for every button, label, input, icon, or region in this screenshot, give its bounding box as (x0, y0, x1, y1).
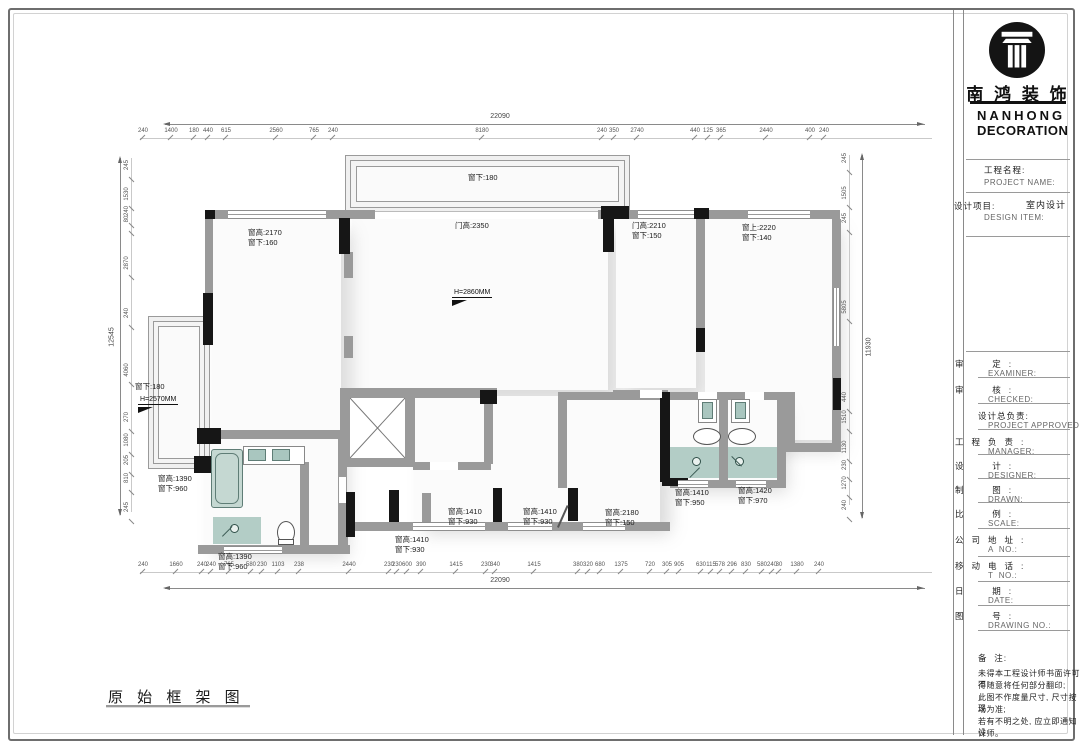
dim-value: 720 (645, 562, 655, 568)
plan-label: 窗高:1410 窗下:950 (675, 488, 709, 508)
dim-value: 240 (124, 308, 130, 318)
dim-value: 1505 (842, 186, 848, 199)
tb-row-rule (978, 528, 1070, 529)
dim-value: 270 (124, 412, 130, 422)
dim-value: 1270 (842, 476, 848, 489)
tb-row-rule (978, 454, 1070, 455)
dim-value: 2440 (342, 562, 355, 568)
dim-value: 245 (124, 160, 130, 170)
tb-row-rule (978, 605, 1070, 606)
dim-value: 400 (805, 128, 815, 134)
dim-value: 830 (741, 562, 751, 568)
height-marker: H=2570MM (138, 396, 178, 405)
brand-name-en1: NANHONG (977, 108, 1065, 123)
dim-value: 205 (124, 455, 130, 465)
brand-rule (970, 101, 1066, 104)
dim-right-total: 11930 (866, 338, 873, 357)
column-right-wall (833, 378, 841, 410)
dim-value: 240 (597, 128, 607, 134)
wall-bathL-partition (300, 462, 309, 545)
dim-value: 240 (814, 562, 824, 568)
wall-shaft-north (340, 388, 497, 398)
sink-icon (735, 402, 746, 419)
dim-value: 240 (819, 128, 829, 134)
tb-row-rule (978, 581, 1070, 582)
column-topleft-cap (205, 210, 215, 219)
tb-row-rule (978, 377, 1070, 378)
plan-label: 窗下:180 (468, 173, 498, 183)
dim-value: 245 (842, 213, 848, 223)
titleblock-divider-2 (963, 10, 964, 735)
dim-value: 1380 (790, 562, 803, 568)
dim-value: 180 (189, 128, 199, 134)
room-bedroom-left (213, 219, 341, 430)
balcony-window-line (356, 166, 619, 202)
dim-value: 630 (696, 562, 706, 568)
dim-value: 580 (757, 562, 767, 568)
room-living (352, 218, 608, 390)
sink-icon (272, 449, 290, 461)
dim-value: 320 (583, 562, 593, 568)
shower-head-icon (692, 457, 701, 466)
dim-value: 240 (138, 128, 148, 134)
plan-label: 窗下:180 (135, 382, 165, 392)
bay-window-line (158, 326, 200, 459)
wall-living-left-a (344, 252, 353, 278)
plan-label: 窗高:1410 窗下:930 (523, 507, 557, 527)
dim-arrow (917, 122, 924, 126)
dim-value: 1660 (169, 562, 182, 568)
dim-value: 2870 (124, 256, 130, 269)
column-bottom-b (493, 488, 502, 522)
dim-value: 1080 (124, 433, 130, 446)
height-flag-icon (138, 407, 153, 413)
tb-row-en: DRAWING NO.: (988, 621, 1051, 630)
dim-value: 615 (221, 128, 231, 134)
tb-rule-d (966, 351, 1070, 352)
dim-value: 1510 (842, 410, 848, 423)
titleblock-divider-1 (953, 10, 954, 735)
column-topright-a (601, 206, 629, 219)
caption-underline (106, 705, 250, 708)
wall-living-left-b (344, 336, 353, 358)
column-left-wall (203, 293, 213, 345)
plan-label: 门高:2210 窗下:150 (632, 221, 666, 241)
dim-value: 1400 (164, 128, 177, 134)
wall-shaft-east (405, 398, 415, 458)
dim-value: 230 (392, 562, 402, 568)
window-bed2 (748, 210, 810, 219)
brand-name-en2: DECORATION (977, 123, 1068, 138)
dim-value: 230 (842, 460, 848, 470)
window-topleft (228, 210, 326, 219)
tb-row-en: A NO.: (988, 545, 1017, 554)
column-corridor-a (346, 492, 355, 537)
brand-logo (989, 22, 1045, 78)
dim-value: 2740 (630, 128, 643, 134)
tb-project-en: PROJECT NAME: (984, 178, 1055, 187)
sink-icon (248, 449, 266, 461)
tb-note-line: 场为准; (978, 704, 1006, 715)
wall-bed2-west (786, 392, 795, 452)
dim-value: 390 (416, 562, 426, 568)
dim-value: 340 (490, 562, 500, 568)
dim-arrow (860, 512, 864, 519)
dim-value: 80 (124, 216, 130, 223)
toilet-icon (693, 428, 721, 445)
tb-row-rule (978, 630, 1070, 631)
toilet-icon (728, 428, 756, 445)
dim-arrow (118, 509, 122, 516)
dim-arrow (860, 153, 864, 160)
plan-label: 窗上:2220 窗下:140 (742, 223, 776, 243)
plan-label: 门高:2350 (455, 221, 489, 231)
column-balcony-left (339, 218, 350, 254)
tb-remark-cn: 备 注: (978, 652, 1007, 664)
door-roomA (430, 462, 458, 470)
wall-bathR-east (777, 392, 786, 488)
dim-value: 4060 (124, 363, 130, 376)
dim-value: 240 (206, 562, 216, 568)
tb-design-value: 室内设计 (1026, 198, 1066, 211)
wall-bathR-divider-over (719, 447, 728, 479)
column-bathL-corner (197, 428, 221, 444)
dim-value: 240 (138, 562, 148, 568)
room-middle (415, 396, 660, 522)
dim-left-total-line (120, 158, 121, 515)
tb-row-rule (978, 556, 1070, 557)
tb-row-en: SCALE: (988, 519, 1019, 528)
dim-value: 8180 (475, 128, 488, 134)
door-balcony (375, 211, 598, 219)
drawing-caption: 原 始 框 架 图 (108, 686, 245, 707)
tb-project-cn: 工程名程: (984, 164, 1025, 176)
column-divider-low (696, 328, 705, 352)
wall-mid-vertical (558, 392, 567, 488)
window-right-wall (833, 288, 840, 346)
dim-top-seg-line (140, 138, 932, 139)
dim-value: 600 (402, 562, 412, 568)
dim-value: 240 (328, 128, 338, 134)
dim-top-total-line (165, 124, 925, 125)
dim-value: 238 (294, 562, 304, 568)
dim-value: 440 (203, 128, 213, 134)
column-bathR-west (660, 392, 670, 482)
column-bottom-c (568, 488, 578, 521)
plan-label: 窗高:1420 窗下:970 (738, 486, 772, 506)
dim-value: 296 (727, 562, 737, 568)
height-flag-icon (452, 300, 467, 306)
wall-bathL-north (205, 430, 347, 439)
dim-value: 1130 (842, 441, 848, 454)
dim-value: 2440 (759, 128, 772, 134)
dim-value: 30 (776, 562, 783, 568)
column-shaft-ne (480, 390, 497, 404)
wall-shaft-west (340, 398, 350, 458)
dim-value: 240 (842, 500, 848, 510)
column-balcony-right (603, 218, 614, 252)
elevator-shaft (350, 398, 405, 458)
height-marker: H=2860MM (452, 289, 492, 298)
tb-design-en: DESIGN ITEM: (984, 213, 1044, 222)
plan-label: 窗高:1410 窗下:930 (395, 535, 429, 555)
dim-value: 245 (842, 153, 848, 163)
sink-icon (702, 402, 713, 419)
tb-design-cn: 设计项目: (954, 200, 995, 212)
bathtub-icon (211, 449, 243, 508)
dim-left-seg-line (131, 158, 132, 512)
dim-arrow (163, 122, 170, 126)
dim-value: 5805 (842, 300, 848, 313)
tb-rule-b (966, 192, 1070, 193)
wall-roomA-east (484, 398, 493, 464)
room-bedroom-1 (616, 218, 696, 388)
tb-row-en: T NO.: (988, 571, 1017, 580)
plan-label: 窗高:1390 窗下:960 (218, 552, 252, 572)
dim-arrow (917, 586, 924, 590)
tb-row-rule (978, 403, 1070, 404)
window-bathR-south-1 (678, 480, 708, 488)
dim-value: 380 (573, 562, 583, 568)
tb-note-line: 计师。 (978, 728, 1004, 739)
toilet-tank (278, 539, 294, 545)
column-bottom-a (389, 490, 399, 522)
plan-label: 窗高:1410 窗下:930 (448, 507, 482, 527)
dim-value: 1103 (272, 562, 285, 568)
dim-arrow (163, 586, 170, 590)
tb-rule-a (966, 159, 1070, 160)
dim-value: 810 (124, 473, 130, 483)
tb-note-line: 得随意将任何部分翻印; (978, 680, 1066, 691)
dim-value: 245 (124, 502, 130, 512)
wall-shaft-south (340, 458, 415, 467)
dim-value: 440 (690, 128, 700, 134)
column-bay-bottom (194, 456, 212, 473)
dim-value: 2560 (269, 128, 282, 134)
dim-value: 905 (674, 562, 684, 568)
tb-rule-c (966, 236, 1070, 237)
dim-bottom-total-line (165, 588, 925, 589)
door-corridor (640, 390, 662, 398)
plan-label: 窗高:2170 窗下:160 (248, 228, 282, 248)
dim-value: 1375 (614, 562, 627, 568)
dim-value: 440 (842, 392, 848, 402)
wall-mid-pillar (422, 493, 431, 522)
wall-bed1-bed2-divider (696, 219, 705, 331)
door-bathL-east (339, 477, 346, 503)
dim-value: 680 (595, 562, 605, 568)
dim-value: 230 (257, 562, 267, 568)
dim-value: 765 (309, 128, 319, 134)
dim-value: 365 (716, 128, 726, 134)
plan-label: 窗高:1390 窗下:960 (158, 474, 192, 494)
wall-left-outer (205, 219, 213, 299)
dim-value: 1415 (449, 562, 462, 568)
tb-row-en: DATE: (988, 596, 1013, 605)
tb-row-rule (978, 429, 1070, 430)
plan-label: 窗高:2180 窗下:150 (605, 508, 639, 528)
dim-right-total-line (862, 155, 863, 518)
dim-arrow (118, 156, 122, 163)
dim-value: 125 (703, 128, 713, 134)
column-topright-b (694, 208, 709, 219)
tb-row-rule (978, 502, 1070, 503)
dim-value: 1415 (527, 562, 540, 568)
dim-top-total: 22090 (490, 113, 509, 120)
dim-bottom-total: 22090 (490, 577, 509, 584)
dim-value: 350 (609, 128, 619, 134)
dim-value: 578 (715, 562, 725, 568)
window-bed1 (638, 210, 694, 219)
tb-row-rule (978, 478, 1070, 479)
dim-left-total: 12545 (109, 327, 116, 346)
dim-value: 305 (662, 562, 672, 568)
dim-value: 1530 (124, 187, 130, 200)
